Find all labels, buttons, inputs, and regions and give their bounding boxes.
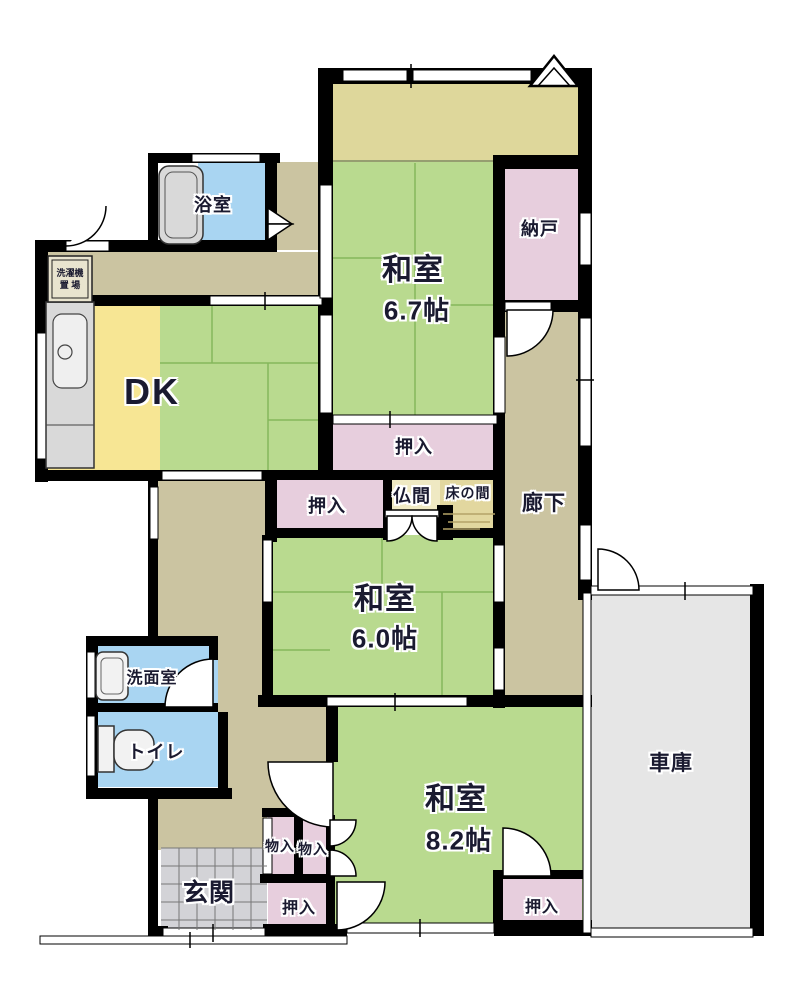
room-size-washitsu67: 6.7帖	[384, 291, 450, 328]
room-label-monoire-left: 物入	[265, 836, 295, 856]
room-label-rouka: 廊下	[522, 487, 566, 517]
room-label-senmen: 洗面室	[126, 664, 177, 688]
floorplan: 浴室 洗濯機 置 場 DK 和室 6.7帖 納戸 押入 押入 仏間 床の間 廊下…	[0, 0, 800, 1000]
room-label-washitsu67: 和室	[382, 245, 444, 289]
room-veranda-floor	[333, 82, 585, 162]
room-size-washitsu60: 6.0帖	[352, 619, 418, 656]
room-label-butsuma: 仏間	[393, 482, 431, 508]
laundry-line2: 置 場	[56, 279, 83, 291]
room-label-washitsu60: 和室	[354, 574, 416, 618]
room-label-garage: 車庫	[649, 747, 693, 777]
room-dk-tatami-floor	[160, 300, 320, 472]
room-label-monoire-right: 物入	[298, 839, 328, 859]
room-label-genkan: 玄関	[183, 873, 235, 909]
room-label-oshiire-center: 押入	[282, 894, 316, 918]
room-label-oshiire-mid: 押入	[308, 492, 346, 518]
room-size-washitsu82: 8.2帖	[426, 821, 492, 858]
room-label-washitsu82: 和室	[425, 774, 487, 818]
room-label-bath: 浴室	[194, 191, 232, 217]
room-label-nando: 納戸	[521, 215, 559, 241]
room-label-oshiire-right: 押入	[525, 893, 559, 917]
room-label-tokonoma: 床の間	[446, 483, 491, 503]
room-label-dk: DK	[124, 371, 180, 413]
laundry-line1: 洗濯機	[56, 267, 83, 279]
rouka-garage-door	[598, 549, 639, 590]
room-label-toilet: トイレ	[128, 738, 185, 764]
hall-left-upper-floor	[158, 478, 265, 648]
room-label-laundry: 洗濯機 置 場	[56, 267, 83, 291]
room-label-oshiire-top: 押入	[395, 433, 433, 459]
toilet-tank	[98, 726, 114, 772]
